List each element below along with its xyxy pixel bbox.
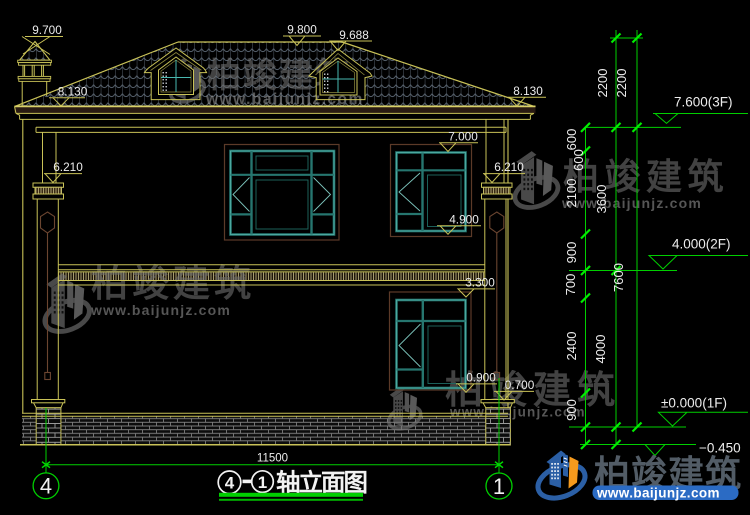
svg-text:2200: 2200 bbox=[614, 69, 629, 98]
svg-text:9.700: 9.700 bbox=[32, 23, 62, 37]
svg-text:700: 700 bbox=[563, 274, 578, 296]
svg-text:3.300: 3.300 bbox=[465, 276, 495, 290]
svg-text:9.800: 9.800 bbox=[287, 23, 317, 37]
svg-text:4.900: 4.900 bbox=[449, 213, 479, 227]
svg-text:轴立面图: 轴立面图 bbox=[276, 468, 366, 497]
svg-text:0.900: 0.900 bbox=[466, 371, 496, 385]
svg-text:4: 4 bbox=[40, 474, 52, 499]
svg-text:±0.000(1F): ±0.000(1F) bbox=[661, 396, 727, 411]
svg-text:柏竣建筑: 柏竣建筑 bbox=[91, 262, 255, 304]
svg-text:www.baijunjz.com: www.baijunjz.com bbox=[561, 195, 702, 211]
svg-text:4.000(2F): 4.000(2F) bbox=[672, 237, 731, 252]
svg-text:0.700: 0.700 bbox=[505, 378, 535, 392]
svg-text:600: 600 bbox=[564, 129, 579, 151]
svg-text:900: 900 bbox=[564, 242, 579, 264]
svg-text:900: 900 bbox=[564, 399, 579, 421]
svg-text:www.baijunjz.com: www.baijunjz.com bbox=[596, 486, 720, 501]
svg-text:3600: 3600 bbox=[594, 185, 609, 214]
svg-text:4000: 4000 bbox=[593, 335, 608, 364]
svg-text:柏竣建筑: 柏竣建筑 bbox=[563, 156, 729, 197]
svg-text:9.688: 9.688 bbox=[339, 28, 369, 42]
svg-text:2100: 2100 bbox=[564, 179, 579, 208]
svg-text:6.210: 6.210 bbox=[53, 160, 83, 174]
svg-text:1: 1 bbox=[258, 473, 267, 492]
svg-text:2400: 2400 bbox=[564, 332, 579, 361]
svg-text:7600: 7600 bbox=[611, 263, 626, 292]
svg-text:7.000: 7.000 bbox=[448, 129, 478, 143]
svg-text:7.600(3F): 7.600(3F) bbox=[674, 95, 733, 110]
svg-text:www.baijunjz.com: www.baijunjz.com bbox=[90, 302, 231, 318]
svg-text:2200: 2200 bbox=[595, 69, 610, 98]
svg-text:11500: 11500 bbox=[257, 453, 288, 465]
svg-text:1: 1 bbox=[493, 474, 505, 499]
svg-text:8.130: 8.130 bbox=[513, 84, 543, 98]
svg-text:600: 600 bbox=[571, 149, 586, 171]
svg-text:8.130: 8.130 bbox=[58, 85, 88, 99]
svg-text:6.210: 6.210 bbox=[494, 160, 524, 174]
svg-text:4: 4 bbox=[225, 474, 235, 493]
